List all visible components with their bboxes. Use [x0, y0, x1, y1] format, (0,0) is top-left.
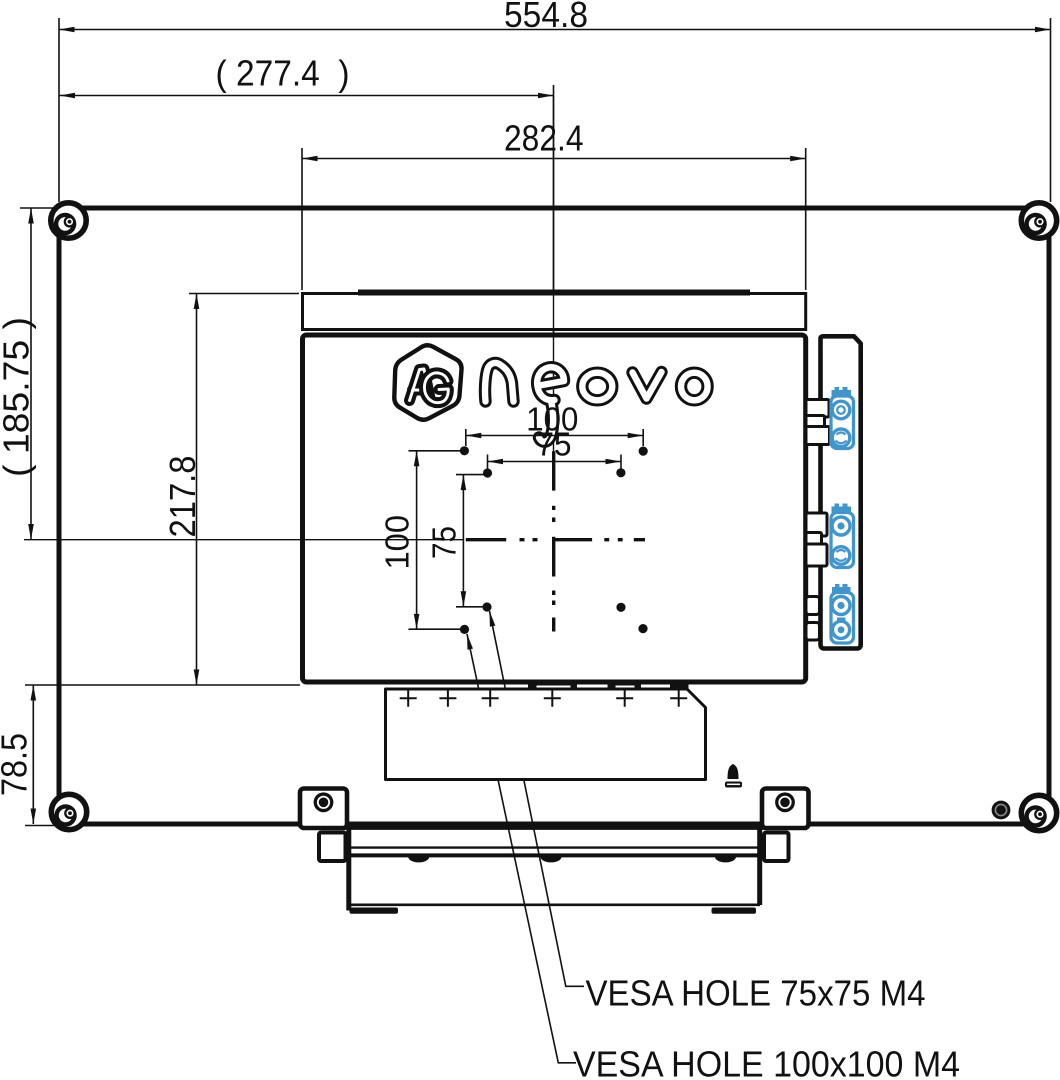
- svg-text:VESA HOLE 100x100 M4: VESA HOLE 100x100 M4: [573, 1043, 960, 1080]
- svg-text:217.8: 217.8: [162, 456, 203, 538]
- svg-text:( 185.75 ): ( 185.75 ): [0, 317, 37, 477]
- svg-text:282.4: 282.4: [504, 118, 584, 159]
- svg-text:VESA HOLE 75x75 M4: VESA HOLE 75x75 M4: [586, 972, 926, 1013]
- svg-text:( 277.4 ): ( 277.4 ): [216, 53, 350, 94]
- svg-text:78.5: 78.5: [0, 733, 35, 796]
- svg-text:100: 100: [379, 515, 416, 570]
- svg-text:554.8: 554.8: [504, 0, 588, 35]
- svg-text:75: 75: [426, 526, 463, 559]
